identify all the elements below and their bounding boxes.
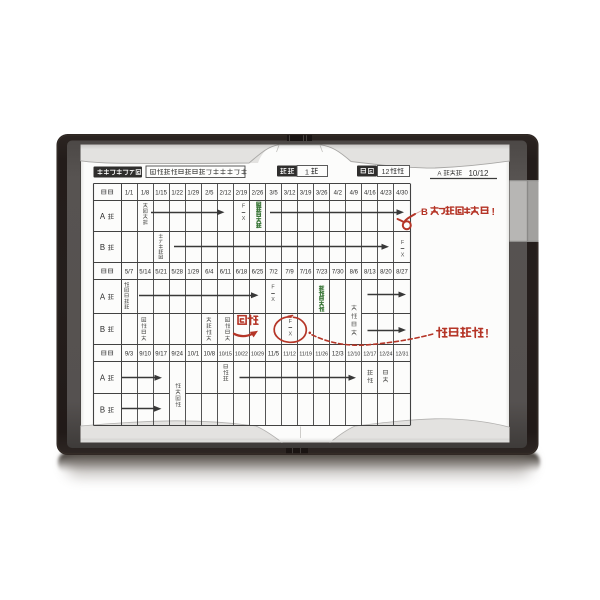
svg-text:8/20: 8/20: [380, 269, 392, 275]
svg-text:!: !: [485, 327, 489, 341]
svg-text:4/23: 4/23: [380, 190, 392, 196]
svg-text:6/18: 6/18: [236, 269, 248, 275]
svg-text:11/5: 11/5: [268, 351, 280, 357]
svg-text:7/2: 7/2: [269, 269, 278, 275]
svg-text:6/11: 6/11: [220, 269, 232, 275]
svg-text:5/7: 5/7: [125, 269, 134, 275]
svg-text:11/26: 11/26: [315, 351, 328, 357]
svg-text:1/15: 1/15: [155, 190, 167, 196]
svg-text:10/1: 10/1: [187, 351, 199, 357]
svg-text:10/8: 10/8: [203, 351, 215, 357]
svg-text:1/29: 1/29: [187, 190, 199, 196]
svg-text:12: 12: [382, 169, 390, 176]
svg-text:10/15: 10/15: [219, 351, 232, 357]
svg-text:11/12: 11/12: [283, 351, 296, 357]
svg-text:8/6: 8/6: [350, 269, 359, 275]
svg-text:10/22: 10/22: [235, 351, 248, 357]
svg-text:1: 1: [305, 168, 309, 177]
svg-text:12/17: 12/17: [363, 351, 376, 357]
svg-text:9/24: 9/24: [171, 351, 183, 357]
svg-text:4/16: 4/16: [364, 190, 376, 196]
svg-text:7/9: 7/9: [285, 269, 294, 275]
svg-text:X: X: [271, 297, 275, 303]
svg-text:7/23: 7/23: [316, 269, 328, 275]
svg-text:12/24: 12/24: [379, 351, 392, 357]
svg-text:12/31: 12/31: [395, 351, 408, 357]
svg-text:1/8: 1/8: [141, 190, 150, 196]
svg-text:A: A: [100, 212, 106, 221]
svg-text:9/10: 9/10: [139, 351, 151, 357]
svg-text:B: B: [421, 207, 428, 218]
svg-text:12/10: 12/10: [347, 351, 360, 357]
svg-text:X: X: [242, 216, 246, 222]
svg-text:11/19: 11/19: [299, 351, 312, 357]
svg-text:X: X: [401, 253, 405, 259]
svg-text:7/16: 7/16: [300, 269, 312, 275]
svg-text:8/13: 8/13: [364, 269, 376, 275]
svg-text:1/29: 1/29: [187, 269, 199, 275]
svg-text:A: A: [100, 374, 106, 383]
svg-text:5/28: 5/28: [171, 269, 183, 275]
svg-text:2/26: 2/26: [252, 190, 264, 196]
svg-text:B: B: [100, 243, 105, 252]
svg-text:5/14: 5/14: [139, 269, 151, 275]
svg-text:1/1: 1/1: [125, 190, 134, 196]
svg-text:5/21: 5/21: [155, 269, 167, 275]
svg-text:3/12: 3/12: [284, 190, 296, 196]
svg-text:B: B: [100, 406, 105, 415]
svg-text:8/27: 8/27: [396, 269, 408, 275]
svg-text:3/26: 3/26: [316, 190, 328, 196]
svg-text:12/3: 12/3: [332, 351, 344, 357]
svg-text:A: A: [100, 292, 106, 301]
svg-text:2/5: 2/5: [205, 190, 214, 196]
svg-text:9/3: 9/3: [125, 351, 134, 357]
svg-text:4/2: 4/2: [334, 190, 343, 196]
svg-text:4/9: 4/9: [350, 190, 359, 196]
svg-text:2/19: 2/19: [236, 190, 248, 196]
svg-text:!: !: [492, 206, 496, 218]
svg-text:7/30: 7/30: [332, 269, 344, 275]
svg-text:1/22: 1/22: [171, 190, 183, 196]
svg-text:6/25: 6/25: [252, 269, 264, 275]
svg-text:6/4: 6/4: [205, 269, 214, 275]
svg-text:3/5: 3/5: [269, 190, 278, 196]
svg-text:B: B: [100, 325, 105, 334]
svg-text:4/30: 4/30: [396, 190, 408, 196]
svg-text:X: X: [288, 332, 292, 338]
svg-text:2/12: 2/12: [220, 190, 232, 196]
svg-text:10/29: 10/29: [251, 351, 264, 357]
svg-text:9/17: 9/17: [155, 351, 167, 357]
svg-text:10/12: 10/12: [468, 169, 489, 178]
svg-text:3/19: 3/19: [300, 190, 312, 196]
